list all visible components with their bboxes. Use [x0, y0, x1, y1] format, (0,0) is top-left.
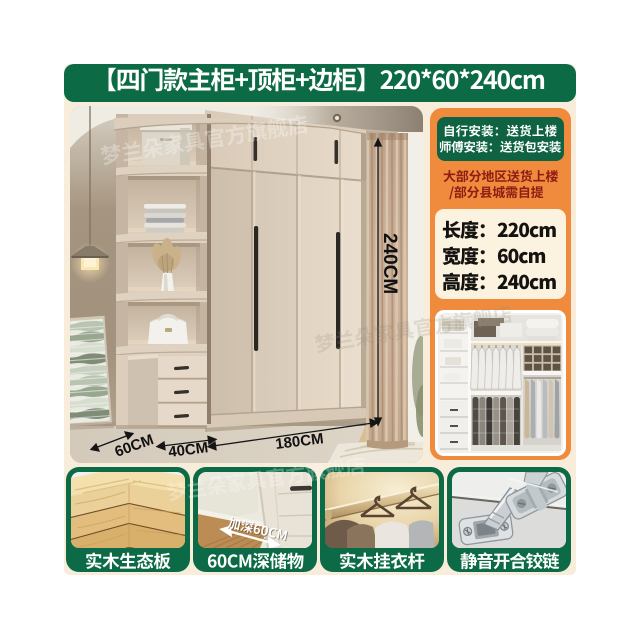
svg-text:240CM: 240CM	[379, 233, 400, 294]
